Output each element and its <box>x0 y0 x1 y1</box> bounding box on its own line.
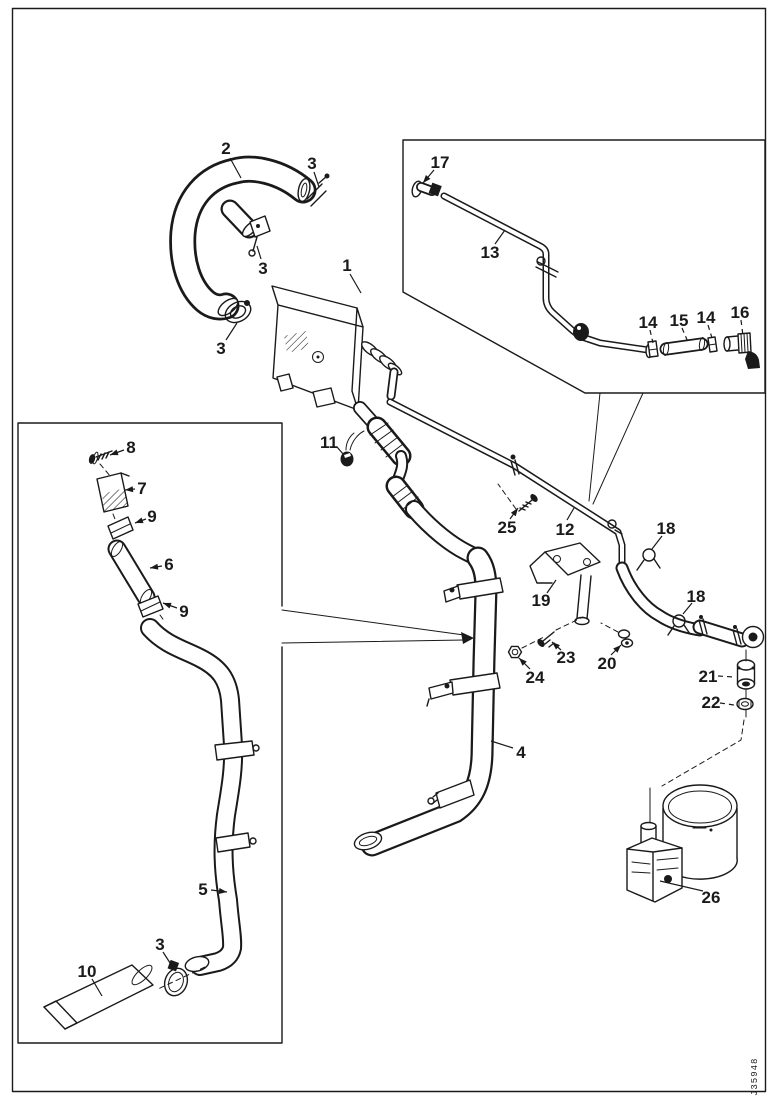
screw-23 <box>536 617 583 648</box>
callout-text: 17 <box>431 153 450 172</box>
callout-6: 6 <box>150 555 174 574</box>
callout-text: 25 <box>498 518 517 537</box>
callout-text: 3 <box>216 339 225 358</box>
bracket-19 <box>530 543 600 625</box>
inset-tube-13 <box>411 180 652 357</box>
callout-1: 1 <box>342 256 361 293</box>
intake-pipe-4 <box>352 558 503 853</box>
connector-7 <box>97 473 129 524</box>
callout-text: 12 <box>556 520 575 539</box>
callout-arrowhead <box>135 517 144 523</box>
callout-9: 9 <box>163 602 189 621</box>
callout-text: 3 <box>258 259 267 278</box>
callout-text: 11 <box>320 433 338 452</box>
callout-arrowhead <box>110 449 119 455</box>
sleeve-14-right <box>708 337 717 352</box>
callout-leader <box>163 952 172 966</box>
callout-24: 24 <box>519 658 545 687</box>
fitting-16 <box>724 333 760 369</box>
callout-text: 20 <box>598 654 617 673</box>
callout-7: 7 <box>125 479 147 498</box>
callout-leader <box>495 230 505 244</box>
callout-text: 14 <box>639 313 658 332</box>
callout-leader <box>257 246 261 259</box>
figure-code: J35948 <box>750 1036 765 1096</box>
callout-leader <box>567 508 574 520</box>
callout-13: 13 <box>481 230 505 262</box>
callout-18: 18 <box>652 519 675 549</box>
nut-20 <box>601 623 633 647</box>
fitting-17 <box>411 180 442 198</box>
sensor-11 <box>341 431 365 467</box>
screw-25 <box>498 484 539 511</box>
screw-8 <box>88 451 112 477</box>
callout-text: 16 <box>731 303 750 322</box>
callout-text: 8 <box>126 438 135 457</box>
callout-text: 18 <box>687 587 706 606</box>
tube-13-connector <box>573 323 589 341</box>
callout-text: 24 <box>526 668 545 687</box>
callout-text: 23 <box>557 648 576 667</box>
callout-14: 14 <box>697 308 716 338</box>
sleeve-14-left <box>648 341 658 357</box>
nut-24 <box>509 636 547 658</box>
callout-text: 13 <box>481 243 500 262</box>
air-cleaner-1 <box>272 286 403 426</box>
callout-20: 20 <box>598 645 621 673</box>
callout-leader <box>226 323 237 340</box>
fitting-21 <box>738 660 755 689</box>
callout-text: 2 <box>221 139 230 158</box>
callout-leader <box>720 703 734 705</box>
callout-text: 4 <box>516 743 526 762</box>
parts-diagram-page: 2333117131415141611251219181823202442122… <box>0 0 778 1100</box>
callout-text: 6 <box>164 555 173 574</box>
callout-text: 19 <box>532 591 551 610</box>
inset-box-left <box>18 423 474 1043</box>
clamp-9-upper <box>108 517 133 539</box>
callout-leader <box>718 676 734 677</box>
callout-11: 11 <box>320 433 344 455</box>
mounting-dashed-line <box>662 720 744 786</box>
callout-text: 22 <box>702 693 721 712</box>
hose-5-bracket-upper <box>215 741 259 760</box>
callout-22: 22 <box>702 693 734 712</box>
callout-text: 9 <box>179 602 188 621</box>
callout-4: 4 <box>491 741 526 762</box>
exploded-parts-diagram: 2333117131415141611251219181823202442122… <box>0 0 778 1100</box>
callout-17: 17 <box>423 153 449 183</box>
callout-text: 3 <box>155 935 164 954</box>
inset-pointer-arrow <box>461 632 474 644</box>
clamp-18-upper <box>637 549 660 570</box>
hose-15 <box>663 337 706 356</box>
callout-21: 21 <box>699 667 734 686</box>
tube-6 <box>109 540 154 607</box>
callout-3: 3 <box>216 323 237 358</box>
callout-text: 5 <box>198 880 207 899</box>
nut-22 <box>737 699 753 710</box>
callout-arrowhead <box>163 603 172 609</box>
callout-9: 9 <box>135 507 157 526</box>
callout-text: 14 <box>697 308 716 327</box>
callout-arrowhead <box>125 486 133 492</box>
callout-25: 25 <box>498 508 518 537</box>
callout-leader <box>350 274 361 293</box>
canister-26 <box>627 785 737 902</box>
callout-19: 19 <box>532 580 556 610</box>
callout-text: 10 <box>78 962 97 981</box>
callout-23: 23 <box>552 642 575 667</box>
hose-5 <box>150 628 259 974</box>
inlet-duct-10 <box>44 962 155 1029</box>
callout-text: 7 <box>137 479 146 498</box>
callout-3: 3 <box>155 935 172 966</box>
hose-2 <box>183 169 312 319</box>
callout-12: 12 <box>556 508 575 539</box>
callout-text: 9 <box>147 507 156 526</box>
callout-18: 18 <box>683 587 705 614</box>
bellows-hose <box>370 423 480 561</box>
callout-leader <box>491 741 513 748</box>
callout-arrowhead <box>511 508 518 516</box>
tube-12 <box>390 402 764 648</box>
callout-text: 15 <box>670 311 689 330</box>
callout-text: 26 <box>702 888 721 907</box>
callout-arrowhead <box>150 564 158 570</box>
callout-text: 21 <box>699 667 718 686</box>
callout-15: 15 <box>670 311 689 342</box>
callout-16: 16 <box>731 303 750 336</box>
callout-leader <box>337 447 344 455</box>
callout-text: 18 <box>657 519 676 538</box>
callout-text: 1 <box>342 256 351 275</box>
callout-8: 8 <box>110 438 136 457</box>
callout-text: 3 <box>307 154 316 173</box>
callout-3: 3 <box>257 246 268 278</box>
callout-14: 14 <box>639 313 658 343</box>
